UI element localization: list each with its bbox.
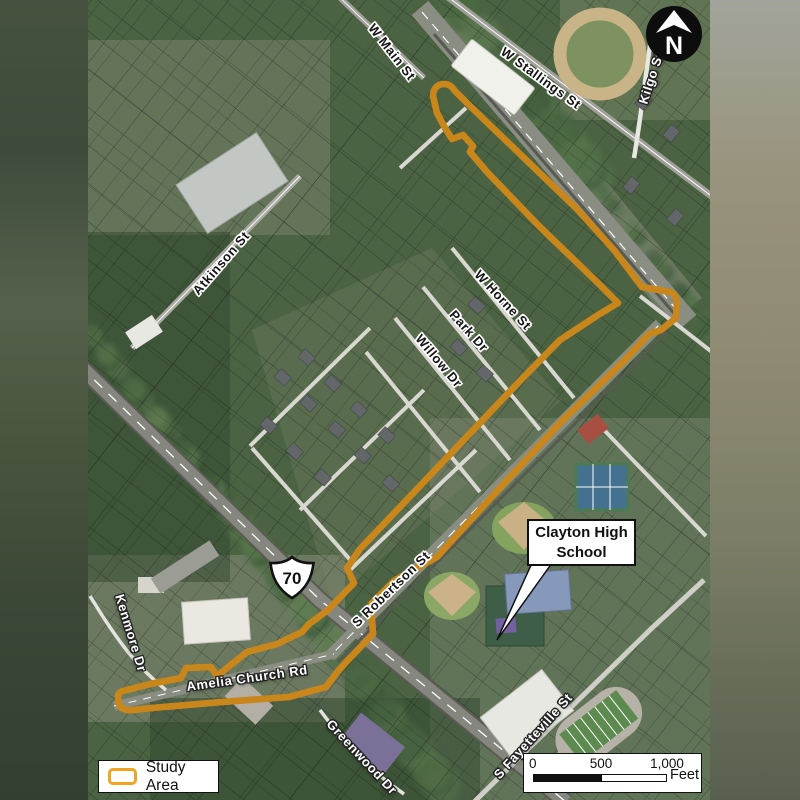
study-area-swatch [108, 768, 137, 785]
aerial-map-canvas [0, 0, 800, 800]
legend: Study Area [98, 760, 219, 793]
satellite-imagery [79, 0, 719, 800]
scale-tick-500: 500 [585, 756, 617, 771]
shield-number: 70 [283, 569, 302, 588]
legend-label: Study Area [146, 759, 218, 795]
map-figure: W Main StW Stallings StKilgo StAtkinson … [0, 0, 800, 800]
scale-tick-0: 0 [529, 756, 537, 771]
north-arrow: N [645, 5, 703, 63]
north-letter: N [665, 32, 683, 60]
scale-unit: Feet [670, 767, 699, 783]
scale-bar-segment-filled [533, 774, 601, 782]
school-callout: Clayton High School [527, 519, 636, 566]
scale-bar: 0 500 1,000 Feet [523, 753, 702, 793]
callout-line-2: School [529, 543, 634, 563]
us-70-highway-shield: 70 [267, 555, 317, 600]
callout-line-1: Clayton High [529, 523, 634, 543]
scale-bar-segment-empty [601, 774, 667, 782]
